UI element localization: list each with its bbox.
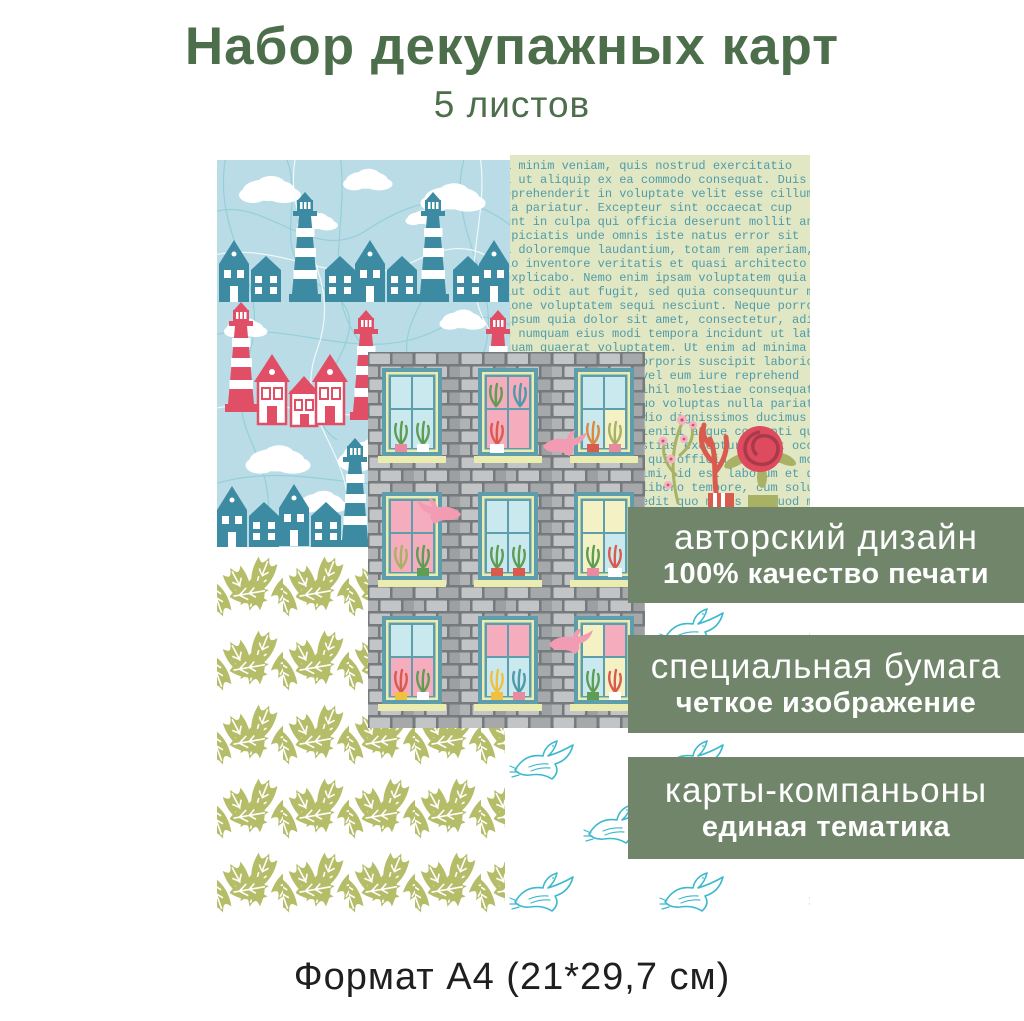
badge-line2: 100% качество печати: [663, 557, 989, 592]
rose-flower-icon: [722, 426, 798, 488]
window: [474, 616, 542, 711]
feature-badge-design: авторский дизайн 100% качество печати: [628, 507, 1024, 603]
badge-line1: авторский дизайн: [674, 518, 978, 557]
building-illustration: [368, 352, 645, 728]
badge-line2: четкое изображение: [676, 686, 977, 721]
feature-badge-companion: карты-компаньоны единая тематика: [628, 757, 1024, 859]
feature-badge-paper: специальная бумага четкое изображение: [628, 635, 1024, 733]
window: [474, 368, 542, 463]
badge-line1: специальная бумага: [651, 647, 1001, 686]
flower-pots: [708, 493, 778, 508]
window: [570, 368, 638, 463]
page-title: Набор декупажных карт: [0, 16, 1024, 77]
page-subtitle: 5 листов: [0, 84, 1024, 126]
format-label: Формат А4 (21*29,7 см): [0, 956, 1024, 999]
badge-line2: единая тематика: [702, 810, 950, 845]
window: [378, 368, 446, 463]
blossom-branch-icon: [659, 415, 698, 503]
decoupage-card-building: [368, 352, 645, 728]
badge-line1: карты-компаньоны: [665, 771, 987, 810]
product-image: Набор декупажных карт 5 листов: [0, 0, 1024, 1021]
window: [474, 492, 542, 587]
window: [378, 616, 446, 711]
